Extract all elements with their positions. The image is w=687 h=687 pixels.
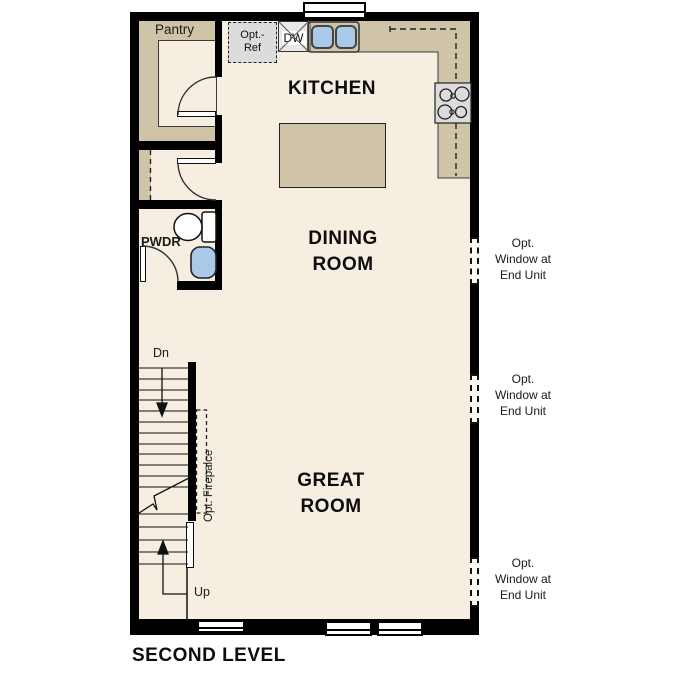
opt-window-3 — [470, 557, 479, 607]
wall-pwdr-right — [215, 200, 222, 290]
note-line: Opt. — [481, 371, 565, 387]
dishwasher-label: DW — [282, 31, 306, 45]
wall-pantry-right-upper — [215, 21, 222, 77]
window-bottom-right — [377, 621, 423, 636]
wall-left — [130, 12, 139, 635]
note-line: End Unit — [481, 267, 565, 283]
opt-window-note-2: Opt. Window at End Unit — [481, 371, 565, 419]
opt-window-note-1: Opt. Window at End Unit — [481, 235, 565, 283]
great-room-label-line2: ROOM — [281, 494, 381, 520]
great-room-label: GREAT ROOM — [281, 468, 381, 520]
dining-room-label-line1: DINING — [293, 226, 393, 252]
kitchen-counter-top — [310, 21, 470, 52]
window-bottom-mid — [325, 621, 372, 636]
dining-room-label-line2: ROOM — [293, 252, 393, 278]
opt-window-note-3: Opt. Window at End Unit — [481, 555, 565, 603]
stairs-up-label: Up — [194, 585, 210, 599]
stairs-down-label: Dn — [153, 346, 169, 360]
kitchen-label: KITCHEN — [270, 76, 394, 102]
wall-stair — [188, 362, 196, 521]
dishwasher: DW — [278, 21, 309, 52]
pantry-label: Pantry — [155, 22, 194, 37]
note-line: End Unit — [481, 403, 565, 419]
window-top — [303, 2, 366, 19]
window-bottom-left — [197, 620, 245, 633]
wall-right — [470, 12, 479, 635]
opt-window-1 — [470, 237, 479, 285]
pwdr-label: PWDR — [141, 234, 181, 249]
opt-ref-label-line1: Opt.- — [229, 29, 276, 42]
great-room-label-line1: GREAT — [281, 468, 381, 494]
hall-closet-shelf — [139, 150, 151, 200]
wall-bottom — [130, 619, 479, 635]
note-line: Opt. — [481, 235, 565, 251]
window-mullion — [305, 11, 364, 13]
note-line: Window at — [481, 571, 565, 587]
opt-window-2 — [470, 374, 479, 424]
floor-plan: Opt.- Ref DW — [0, 0, 687, 687]
dining-room-label: DINING ROOM — [293, 226, 393, 278]
wall-pantry-right-mid — [215, 115, 222, 163]
kitchen-island — [279, 123, 386, 188]
window-mullion — [327, 629, 370, 631]
page-title: SECOND LEVEL — [132, 645, 286, 667]
wall-pwdr-bottom — [177, 281, 222, 290]
stair-rail-panel — [186, 522, 194, 568]
hall-door-leaf — [177, 158, 216, 164]
wall-pwdr-top — [139, 200, 222, 209]
window-mullion — [199, 627, 243, 629]
note-line: Window at — [481, 251, 565, 267]
note-line: End Unit — [481, 587, 565, 603]
pantry-door-leaf — [177, 111, 216, 117]
opt-refrigerator: Opt.- Ref — [228, 22, 277, 63]
floor-plan-page: { "page_title": "SECOND LEVEL", "floor_p… — [0, 0, 687, 687]
wall-pantry-bottom — [139, 141, 222, 150]
pwdr-door-leaf — [140, 246, 146, 282]
window-mullion — [379, 629, 421, 631]
note-line: Opt. — [481, 555, 565, 571]
kitchen-counter-right — [438, 52, 470, 178]
opt-fireplace-label: Opt. Firepalce — [203, 406, 225, 522]
note-line: Window at — [481, 387, 565, 403]
opt-ref-label-line2: Ref — [229, 42, 276, 55]
